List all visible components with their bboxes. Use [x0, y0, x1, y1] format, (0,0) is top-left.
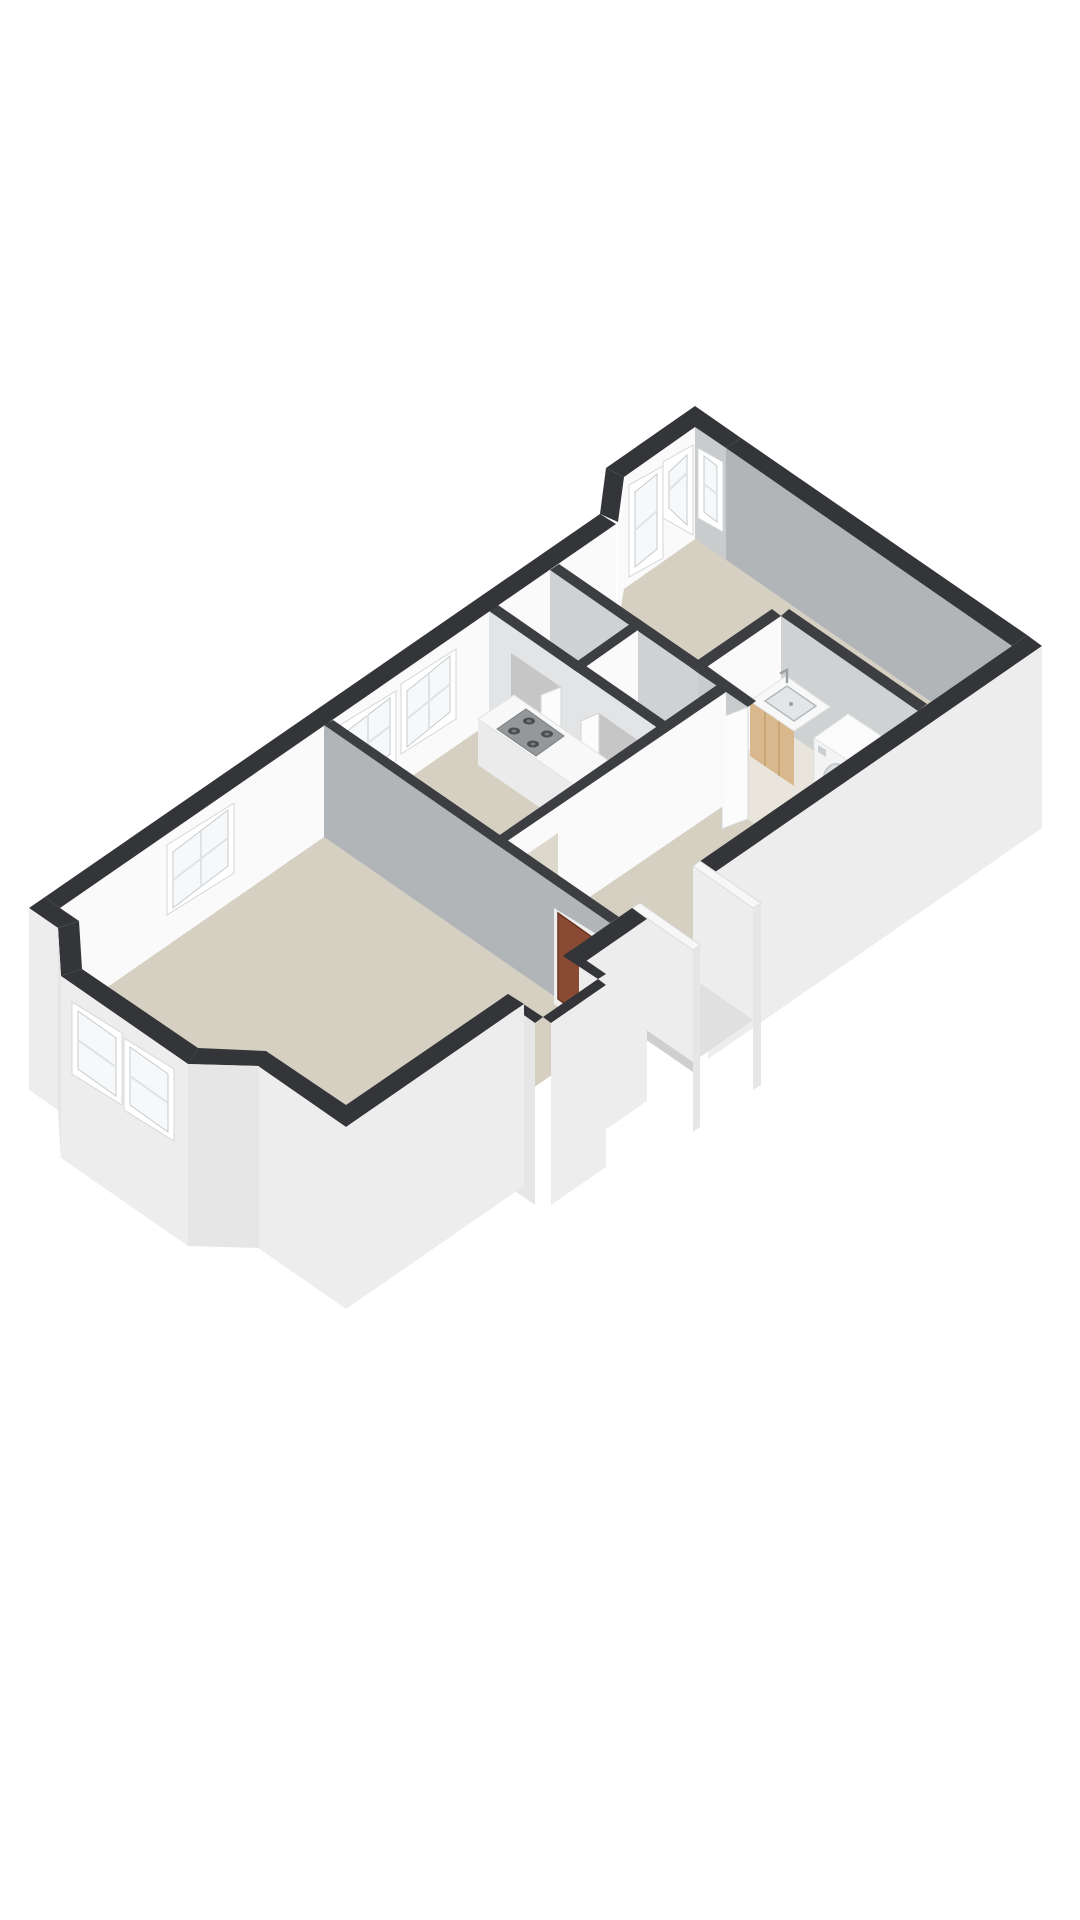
bay-angled-se-top [188, 1048, 266, 1066]
bay-window-pane-3 [698, 448, 723, 532]
sw-corner-face [29, 908, 58, 1110]
chimney-front-face [551, 985, 606, 1205]
burner-cap [512, 730, 517, 733]
porch-wall-2-end [693, 945, 700, 1132]
floorplan-canvas [0, 0, 1080, 1920]
bay-window-pane-1 [629, 466, 663, 577]
burner-cap [531, 743, 536, 746]
porch-wall-1-end [753, 903, 761, 1090]
floorplan-svg [0, 0, 1080, 1920]
burner-cap [527, 720, 532, 723]
drain-icon [789, 702, 793, 706]
bay-angled-nw-top [58, 921, 82, 976]
bay-angled-se-face [188, 1064, 259, 1248]
burner-cap [545, 733, 550, 736]
